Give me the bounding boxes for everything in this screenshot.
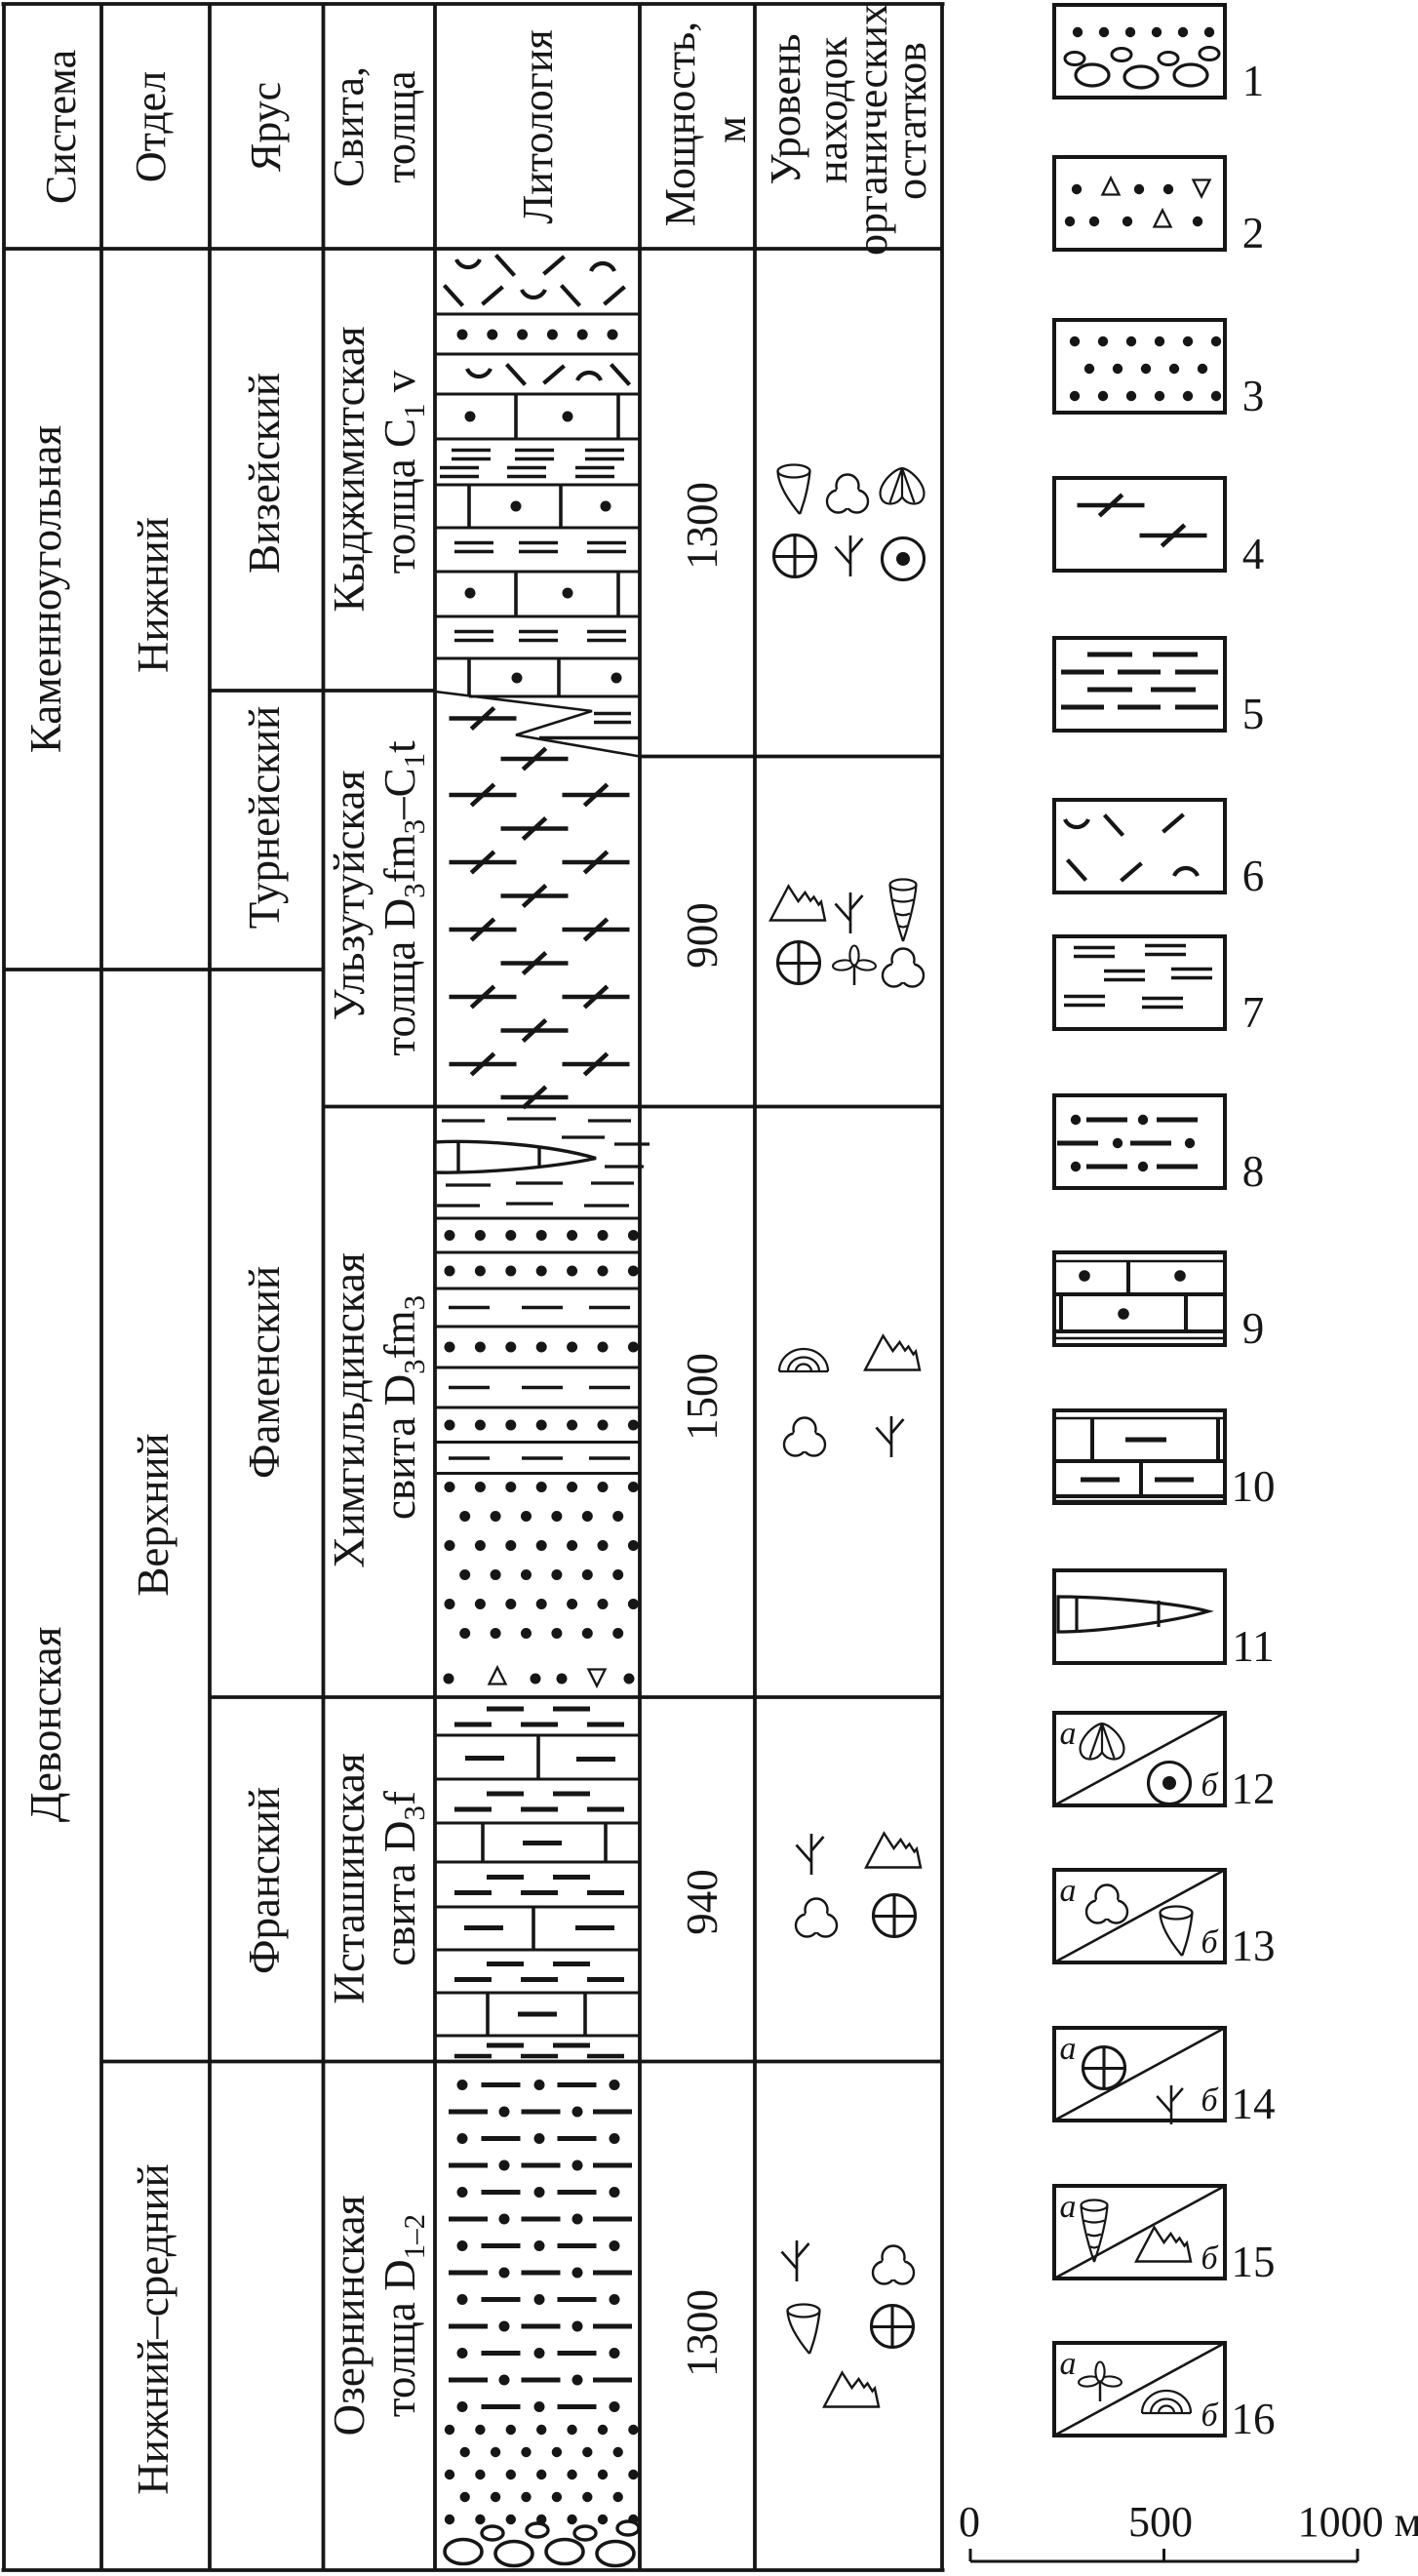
svg-text:900: 900	[678, 902, 727, 969]
svg-text:б: б	[1201, 2082, 1219, 2119]
svg-text:a: a	[1060, 2031, 1077, 2067]
svg-text:a: a	[1060, 1873, 1077, 1909]
svg-text:б: б	[1201, 1924, 1219, 1961]
svg-text:Турнейский: Турнейский	[240, 706, 289, 929]
svg-text:11: 11	[1232, 1622, 1274, 1671]
svg-text:16: 16	[1232, 2395, 1276, 2443]
svg-text:2: 2	[1242, 209, 1265, 258]
svg-text:1500: 1500	[678, 1353, 727, 1441]
svg-text:0: 0	[959, 2498, 980, 2546]
svg-text:м: м	[707, 116, 755, 143]
svg-text:5: 5	[1242, 690, 1265, 738]
svg-text:Нижний–средний: Нижний–средний	[129, 2163, 177, 2494]
svg-text:Исташинская: Исташинская	[325, 1753, 374, 2003]
svg-text:Отдел: Отдел	[127, 71, 175, 182]
svg-text:1000 м: 1000 м	[1298, 2498, 1418, 2546]
svg-text:Система: Система	[37, 50, 85, 204]
svg-text:Нижний: Нижний	[129, 517, 177, 673]
svg-text:4: 4	[1242, 530, 1265, 578]
svg-text:9: 9	[1242, 1304, 1265, 1353]
svg-text:толща С1​ v: толща С1​ v	[375, 370, 431, 574]
svg-text:Ульзутуйская: Ульзутуйская	[325, 771, 374, 1021]
svg-text:б: б	[1201, 1767, 1219, 1803]
svg-text:Девонская: Девонская	[21, 1627, 70, 1823]
svg-text:a: a	[1060, 1716, 1077, 1752]
svg-text:940: 940	[678, 1869, 727, 1935]
svg-text:Озернинская: Озернинская	[325, 2196, 374, 2437]
svg-text:3: 3	[1242, 372, 1265, 420]
svg-text:500: 500	[1128, 2498, 1193, 2546]
svg-text:Литология: Литология	[514, 29, 562, 223]
svg-text:б: б	[1201, 2240, 1219, 2277]
svg-text:Ярус: Ярус	[242, 82, 290, 172]
svg-text:Фаменский: Фаменский	[240, 1266, 289, 1479]
svg-text:a: a	[1060, 2346, 1077, 2382]
svg-text:Уровень: Уровень	[762, 34, 809, 185]
svg-text:свита D3​fm3​: свита D3​fm3​	[375, 1295, 431, 1520]
svg-text:остатков: остатков	[887, 42, 935, 200]
svg-text:1300: 1300	[678, 482, 727, 570]
svg-text:Каменноугольная: Каменноугольная	[21, 425, 70, 753]
svg-text:13: 13	[1232, 1922, 1276, 1970]
svg-text:толща: толща	[376, 70, 424, 182]
svg-text:Верхний: Верхний	[129, 1433, 177, 1596]
svg-text:1300: 1300	[678, 2289, 727, 2377]
svg-text:a: a	[1060, 2189, 1077, 2225]
svg-text:б: б	[1201, 2398, 1219, 2434]
svg-text:15: 15	[1232, 2238, 1276, 2286]
svg-text:7: 7	[1242, 988, 1265, 1037]
svg-text:1: 1	[1242, 57, 1265, 105]
svg-text:Химгильдинская: Химгильдинская	[325, 1252, 374, 1567]
svg-text:Визейский: Визейский	[240, 373, 289, 574]
svg-text:Кыджимитская: Кыджимитская	[325, 327, 374, 613]
svg-text:Мощность,: Мощность,	[656, 21, 704, 226]
svg-text:Свита,: Свита,	[325, 66, 373, 187]
svg-text:10: 10	[1232, 1462, 1276, 1511]
svg-text:Франский: Франский	[240, 1787, 289, 1974]
svg-text:12: 12	[1232, 1764, 1276, 1813]
svg-text:8: 8	[1242, 1147, 1265, 1196]
svg-text:14: 14	[1232, 2080, 1276, 2128]
svg-text:6: 6	[1242, 852, 1265, 900]
